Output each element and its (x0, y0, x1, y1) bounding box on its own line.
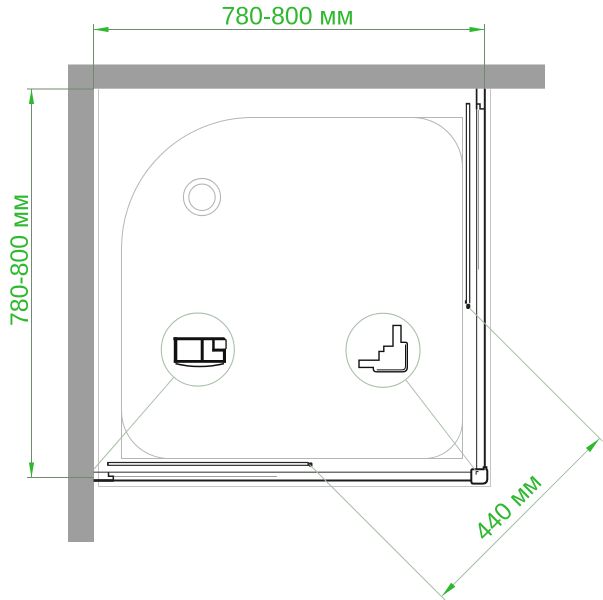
svg-text:780-800 мм: 780-800 мм (222, 4, 354, 31)
svg-text:780-800 мм: 780-800 мм (7, 194, 34, 326)
